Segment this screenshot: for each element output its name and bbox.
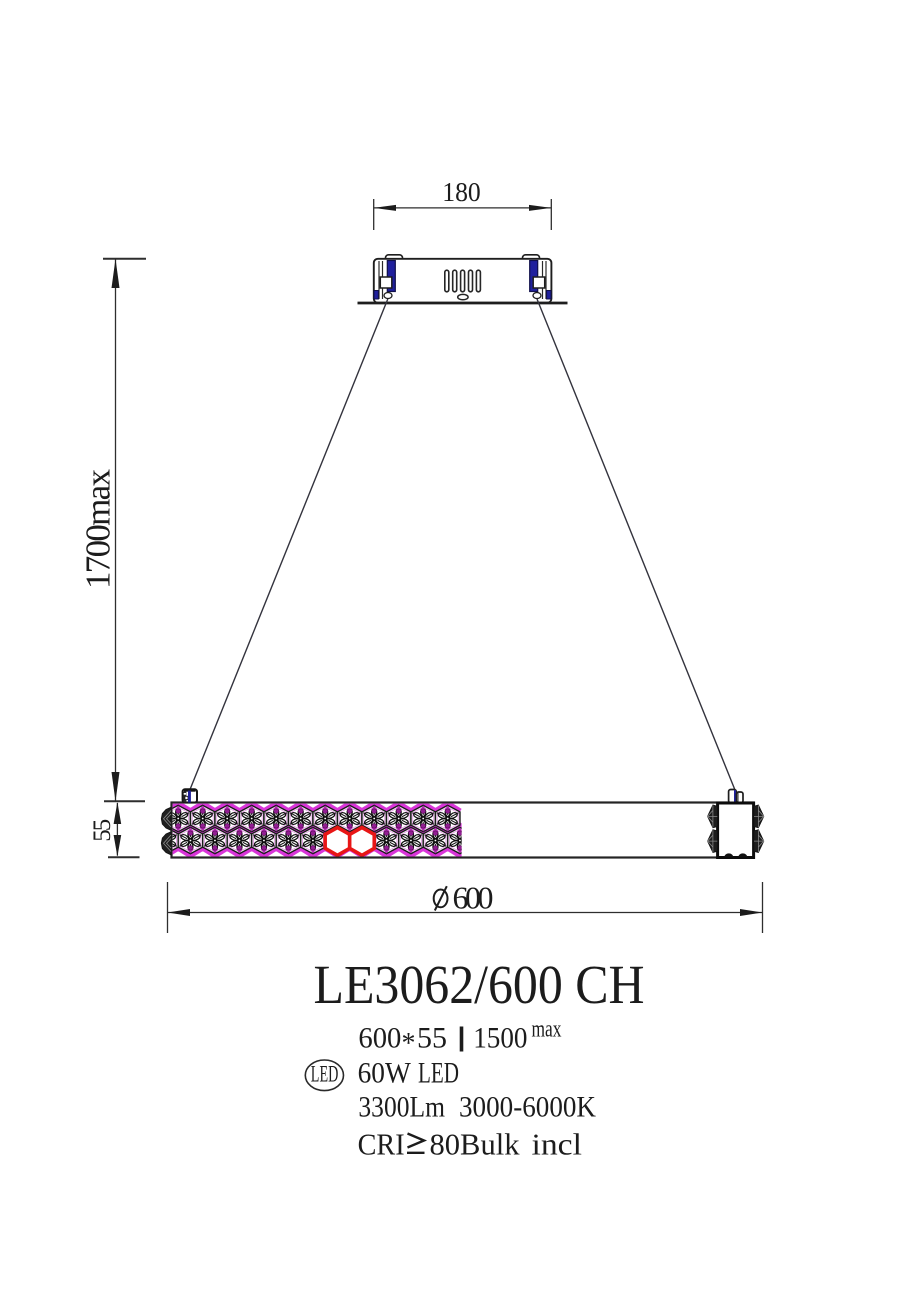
- svg-text:600: 600: [358, 1022, 401, 1055]
- svg-text:incl: incl: [532, 1127, 583, 1162]
- svg-text:LE3062/600 CH: LE3062/600 CH: [314, 955, 645, 1016]
- svg-text:max: max: [532, 1017, 562, 1043]
- svg-text:60W: 60W: [358, 1057, 412, 1090]
- svg-text:180: 180: [442, 177, 481, 207]
- svg-text:3000-6000K: 3000-6000K: [459, 1091, 596, 1124]
- svg-text:600: 600: [453, 880, 494, 916]
- svg-text:3300Lm: 3300Lm: [358, 1091, 445, 1124]
- svg-text:LED: LED: [311, 1061, 339, 1086]
- svg-text:LED: LED: [418, 1057, 459, 1090]
- svg-text:1500: 1500: [473, 1022, 527, 1055]
- svg-text:55: 55: [89, 819, 116, 842]
- svg-text:55: 55: [417, 1022, 447, 1055]
- svg-text:1700max: 1700max: [79, 469, 118, 590]
- svg-text:80Bulk: 80Bulk: [430, 1127, 520, 1162]
- svg-text:CRI: CRI: [358, 1127, 405, 1162]
- svg-text:*: *: [402, 1027, 416, 1060]
